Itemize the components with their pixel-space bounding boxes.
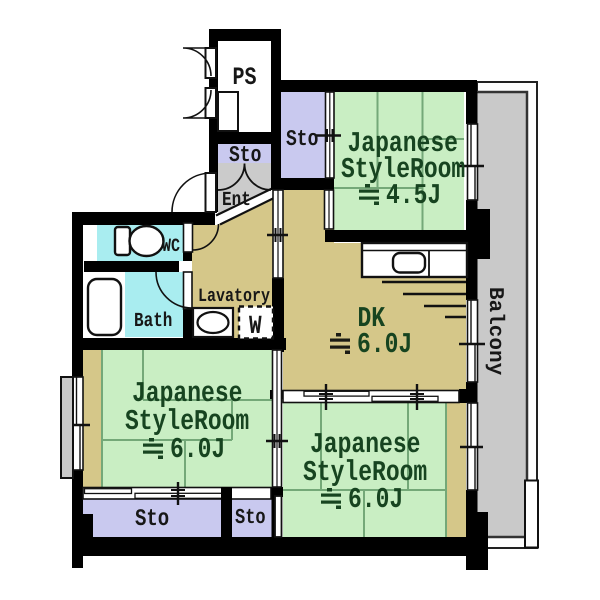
svg-text:WC: WC bbox=[162, 236, 180, 257]
svg-text:Sto: Sto bbox=[229, 144, 261, 169]
svg-text:Balcony: Balcony bbox=[483, 287, 506, 376]
svg-text:6.0J: 6.0J bbox=[357, 328, 412, 361]
svg-text:Lavatory: Lavatory bbox=[198, 286, 270, 307]
svg-text:PS: PS bbox=[233, 64, 257, 93]
svg-text:4.5J: 4.5J bbox=[386, 179, 441, 212]
svg-text:Sto: Sto bbox=[286, 128, 318, 153]
svg-text:Bath: Bath bbox=[134, 310, 172, 333]
svg-text:Sto: Sto bbox=[235, 507, 266, 531]
svg-text:Ent: Ent bbox=[222, 189, 251, 212]
svg-text:6.0J: 6.0J bbox=[170, 433, 225, 466]
svg-text:6.0J: 6.0J bbox=[348, 483, 403, 516]
svg-text:W: W bbox=[249, 313, 262, 342]
svg-text:Sto: Sto bbox=[135, 505, 169, 533]
